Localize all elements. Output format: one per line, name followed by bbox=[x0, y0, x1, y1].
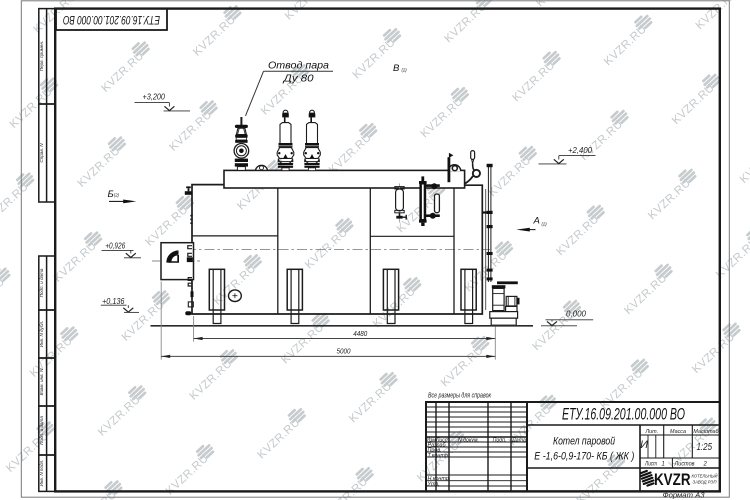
svg-text:5000: 5000 bbox=[337, 349, 351, 356]
svg-text:KVZR.RU: KVZR.RU bbox=[76, 145, 123, 190]
svg-text:Б: Б bbox=[108, 189, 114, 200]
svg-text:KVZR.RU: KVZR.RU bbox=[279, 321, 326, 366]
svg-text:Листов: Листов bbox=[674, 462, 695, 468]
svg-text:Утв.: Утв. bbox=[427, 481, 440, 487]
svg-text:В: В bbox=[393, 63, 400, 74]
svg-text:А: А bbox=[533, 216, 540, 227]
svg-text:Т.контр.: Т.контр. bbox=[428, 453, 450, 459]
svg-text:KVZR.RU: KVZR.RU bbox=[578, 118, 625, 163]
svg-text:KVZR.RU: KVZR.RU bbox=[439, 344, 486, 389]
svg-text:KVZR.RU: KVZR.RU bbox=[646, 177, 693, 222]
svg-text:Справ. N: Справ. N bbox=[39, 143, 44, 163]
svg-text:Все размеры для справок: Все размеры для справок bbox=[428, 392, 492, 400]
svg-text:Инв. N подл.: Инв. N подл. bbox=[39, 460, 44, 487]
svg-text:KVZR.RU: KVZR.RU bbox=[4, 430, 51, 475]
svg-text:Е -1,6-0,9-170- КБ ( ЖК ): Е -1,6-0,9-170- КБ ( ЖК ) bbox=[534, 451, 634, 463]
svg-text:KVZR.RU: KVZR.RU bbox=[191, 14, 238, 59]
svg-text:KVZR.RU: KVZR.RU bbox=[99, 50, 146, 95]
svg-text:(2): (2) bbox=[402, 68, 408, 73]
svg-text:KVZR.RU: KVZR.RU bbox=[510, 59, 557, 104]
svg-text:+0,926: +0,926 bbox=[105, 241, 126, 250]
svg-text:+0,136: +0,136 bbox=[102, 297, 125, 306]
svg-text:KVZR.RU: KVZR.RU bbox=[120, 299, 167, 344]
svg-text:KVZR.RU: KVZR.RU bbox=[347, 380, 394, 425]
svg-text:KVZR.RU: KVZR.RU bbox=[0, 276, 7, 321]
svg-text:N докум.: N докум. bbox=[458, 438, 479, 444]
svg-text:Подп. и дата: Подп. и дата bbox=[39, 416, 44, 445]
svg-text:Инв. N дубл.: Инв. N дубл. bbox=[39, 321, 44, 348]
svg-text:4480: 4480 bbox=[353, 331, 367, 338]
svg-text:KVZR.RU: KVZR.RU bbox=[188, 357, 235, 402]
svg-text:Взам. инв. N: Взам. инв. N bbox=[39, 368, 44, 395]
svg-text:ЗАВОД РЭП: ЗАВОД РЭП bbox=[693, 480, 717, 486]
svg-text:2: 2 bbox=[703, 462, 708, 468]
svg-text:ЕТУ.16.09.201.00.000 ВО: ЕТУ.16.09.201.00.000 ВО bbox=[63, 13, 160, 27]
svg-text:KVZR: KVZR bbox=[654, 470, 691, 489]
svg-text:ЕТУ.16.09.201.00.000 ВО: ЕТУ.16.09.201.00.000 ВО bbox=[562, 405, 685, 424]
svg-text:Дата: Дата bbox=[511, 438, 526, 444]
svg-text:Формат А3: Формат А3 bbox=[663, 491, 706, 500]
svg-text:1:25: 1:25 bbox=[697, 442, 713, 453]
svg-text:Масштаб: Масштаб bbox=[693, 429, 719, 435]
svg-text:Котел паровой: Котел паровой bbox=[553, 436, 615, 448]
svg-text:1: 1 bbox=[662, 462, 665, 468]
svg-text:KVZR.RU: KVZR.RU bbox=[96, 394, 143, 439]
svg-text:KVZR.RU: KVZR.RU bbox=[738, 141, 750, 186]
svg-text:Подп.: Подп. bbox=[493, 438, 507, 444]
svg-text:Лист: Лист bbox=[644, 462, 657, 468]
svg-text:KVZR.RU: KVZR.RU bbox=[694, 0, 741, 32]
svg-text:Масса: Масса bbox=[670, 429, 686, 435]
svg-text:KVZR.RU: KVZR.RU bbox=[28, 335, 75, 380]
svg-text:KVZR.RU: KVZR.RU bbox=[303, 226, 350, 271]
svg-text:KVZR.RU: KVZR.RU bbox=[442, 0, 489, 45]
svg-text:KVZR.RU: KVZR.RU bbox=[554, 213, 601, 258]
svg-text:KVZR.RU: KVZR.RU bbox=[487, 154, 534, 199]
svg-text:KVZR.RU: KVZR.RU bbox=[622, 272, 669, 317]
svg-text:KVZR.RU: KVZR.RU bbox=[602, 23, 649, 68]
svg-text:KVZR.RU: KVZR.RU bbox=[0, 181, 31, 226]
svg-text:(2): (2) bbox=[114, 193, 120, 198]
svg-text:KVZR.RU: KVZR.RU bbox=[670, 82, 717, 127]
svg-text:KVZR.RU: KVZR.RU bbox=[419, 95, 466, 140]
svg-text:Ду 80: Ду 80 bbox=[282, 74, 314, 85]
svg-text:+2,400: +2,400 bbox=[568, 146, 593, 155]
svg-text:KVZR.RU: KVZR.RU bbox=[690, 331, 737, 376]
svg-text:KVZR.RU: KVZR.RU bbox=[167, 109, 214, 154]
svg-text:И: И bbox=[640, 439, 648, 451]
svg-text:Отвод пара: Отвод пара bbox=[268, 60, 329, 71]
svg-text:KVZR.RU: KVZR.RU bbox=[8, 86, 55, 131]
svg-text:KVZR.RU: KVZR.RU bbox=[52, 240, 99, 285]
svg-text:KVZR.RU: KVZR.RU bbox=[351, 36, 398, 81]
svg-text:KVZR.RU: KVZR.RU bbox=[283, 0, 330, 23]
svg-text:KVZR.RU: KVZR.RU bbox=[256, 416, 303, 461]
svg-text:Лит.: Лит. bbox=[644, 429, 658, 435]
svg-text:+3,200: +3,200 bbox=[143, 92, 166, 101]
svg-text:Подп. и дата: Подп. и дата bbox=[39, 268, 44, 297]
svg-text:(2): (2) bbox=[542, 221, 548, 226]
svg-text:KVZR.RU: KVZR.RU bbox=[144, 204, 191, 249]
svg-text:КОТЕЛЬНЫЙ: КОТЕЛЬНЫЙ bbox=[692, 472, 718, 480]
svg-text:0,000: 0,000 bbox=[566, 310, 587, 319]
svg-text:Перв. примен.: Перв. примен. bbox=[39, 41, 44, 72]
